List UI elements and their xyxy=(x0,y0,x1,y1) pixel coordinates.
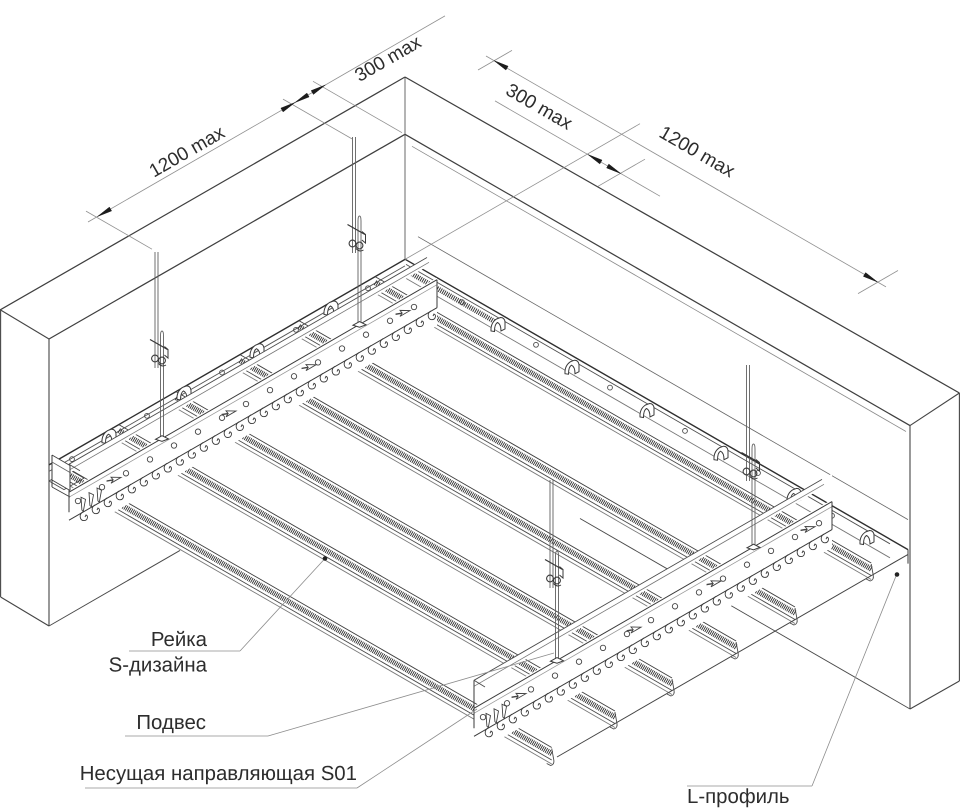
svg-text:Рейка: Рейка xyxy=(151,629,208,651)
svg-text:L-профиль: L-профиль xyxy=(687,786,790,808)
svg-text:S-дизайна: S-дизайна xyxy=(109,655,208,677)
svg-text:Подвес: Подвес xyxy=(136,712,206,734)
svg-text:Несущая направляющая S01: Несущая направляющая S01 xyxy=(80,763,357,785)
